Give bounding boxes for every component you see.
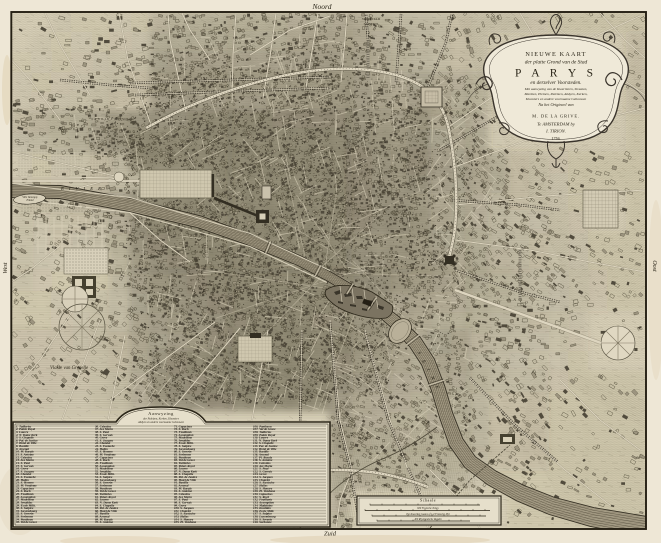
svg-text:Zuid: Zuid [324, 531, 337, 538]
svg-text:1756.: 1756. [551, 136, 560, 141]
svg-text:der platte Grond van de Stad: der platte Grond van de Stad [525, 60, 588, 66]
svg-text:105. Pl. Vendome: 105. Pl. Vendome [174, 520, 197, 524]
svg-text:VOORSTAD: VOORSTAD [362, 17, 381, 21]
svg-text:Schaale: Schaale [420, 498, 436, 503]
svg-text:Na het Origineel van: Na het Origineel van [537, 102, 573, 107]
svg-text:Vlakte van Grenelle: Vlakte van Grenelle [50, 366, 89, 371]
svg-text:LA VILLE L EVESQUE: LA VILLE L EVESQUE [92, 117, 133, 121]
svg-text:Aanwyzing: Aanwyzing [148, 411, 174, 416]
svg-text:I. TIRION.: I. TIRION. [545, 129, 566, 134]
svg-text:NIEUWE KAART: NIEUWE KAART [525, 51, 586, 58]
svg-text:M A R A I S: M A R A I S [399, 196, 441, 201]
svg-text:R I V I E R: R I V I E R [60, 186, 103, 191]
svg-text:G E R M A I N: G E R M A I N [192, 288, 258, 293]
svg-text:70. S. Antoine: 70. S. Antoine [95, 520, 114, 524]
svg-text:P A R Y S: P A R Y S [515, 68, 597, 80]
svg-text:Noord: Noord [312, 2, 332, 11]
svg-text:M. DE LA GRIVE.: M. DE LA GRIVE. [532, 114, 580, 119]
svg-text:140. Sorbonne: 140. Sorbonne [253, 520, 272, 524]
svg-text:Te AMSTERDAM by: Te AMSTERDAM by [537, 122, 576, 127]
svg-text:Eiland: Eiland [26, 199, 35, 202]
svg-text:Kloosters en andere voornaame: Kloosters en andere voornaame Gebouwen [525, 97, 587, 101]
svg-text:Een Kwartier Gaans of 1/4 Fran: Een Kwartier Gaans of 1/4 Fransche Myl [405, 513, 450, 516]
svg-text:600 Fransche Toises: 600 Fransche Toises [417, 507, 438, 510]
svg-text:West: West [3, 262, 9, 273]
svg-text:35. Val de Grace: 35. Val de Grace [15, 520, 38, 524]
svg-text:ST DENIS: ST DENIS [364, 22, 379, 26]
svg-text:400 Rhynlandsche Roeden: 400 Rhynlandsche Roeden [414, 518, 442, 521]
svg-text:en derzelver Voorsteden.: en derzelver Voorsteden. [530, 80, 581, 86]
svg-text:Oost: Oost [651, 260, 657, 272]
